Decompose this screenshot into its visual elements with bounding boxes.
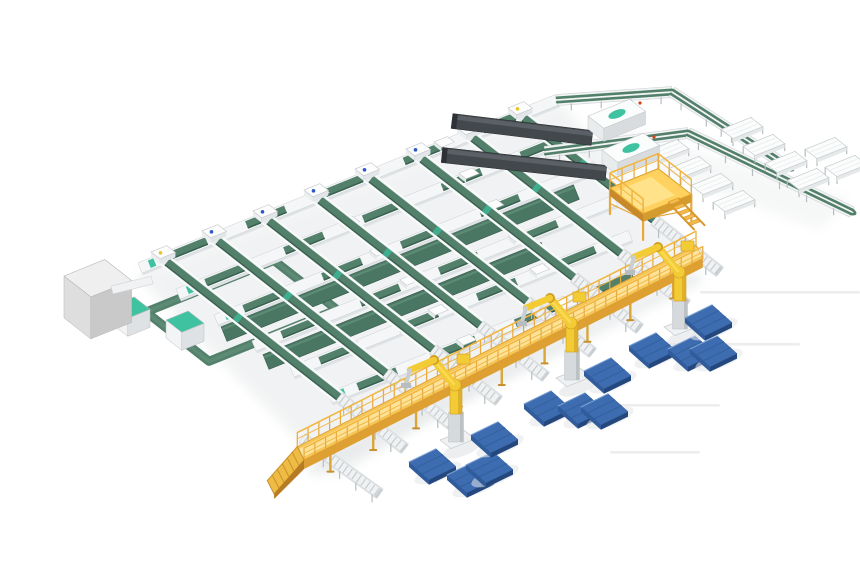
discharge-chute <box>713 190 755 218</box>
beacon-light <box>652 135 655 138</box>
status-marker <box>159 251 163 255</box>
pallet <box>466 452 521 492</box>
floor-shadow-streak <box>700 291 860 294</box>
facility-scene-canvas <box>0 0 860 580</box>
status-marker <box>261 210 265 214</box>
walkway-ramp <box>267 447 304 499</box>
status-marker <box>414 148 418 152</box>
facility-illustration <box>0 0 860 580</box>
status-marker <box>210 230 214 234</box>
status-marker <box>363 168 367 172</box>
beacon-light <box>638 101 641 104</box>
discharge-chute <box>825 155 860 183</box>
floor-streaks <box>600 291 860 454</box>
floor-shadow-streak <box>610 451 700 454</box>
pallet <box>584 358 639 398</box>
status-marker <box>312 189 316 193</box>
status-marker <box>516 107 520 111</box>
pallet <box>471 422 526 462</box>
